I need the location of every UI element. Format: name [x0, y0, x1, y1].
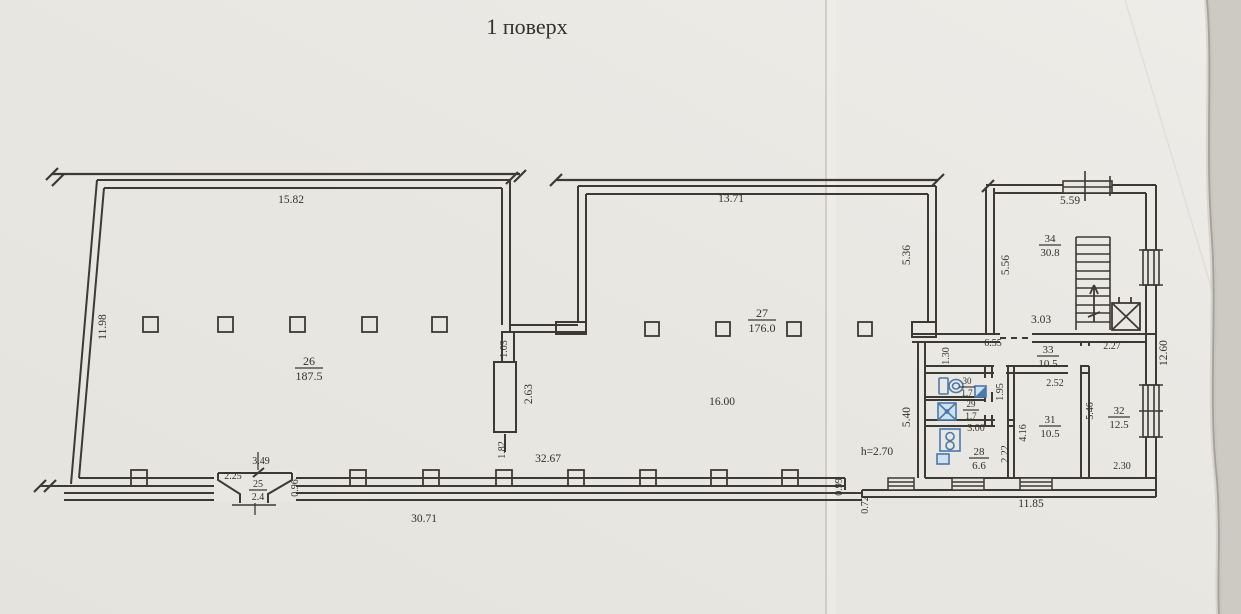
dim-label: 4.16 [1018, 424, 1029, 442]
dim-label: 0.96 [290, 479, 301, 497]
page-title: 1 поверх [486, 14, 567, 39]
floor-plan-svg: 1 поверх 15.8211.9813.711.032.631.8232.6… [0, 0, 1241, 614]
room-number: 34 [1045, 233, 1057, 245]
dim-label: 30.71 [411, 513, 437, 525]
room-number: 33 [1043, 344, 1055, 356]
dim-label: 16.00 [709, 396, 735, 408]
sink-icon [937, 454, 949, 464]
dim-label: 13.71 [718, 193, 744, 205]
dim-label: 32.67 [535, 453, 561, 465]
dim-label: 11.85 [1018, 498, 1044, 510]
room-area: 12.5 [1109, 419, 1129, 431]
room-area: 187.5 [296, 369, 323, 383]
room-number: 28 [974, 446, 986, 458]
room-area: 10.5 [1038, 358, 1058, 370]
room-area: 6.6 [972, 460, 986, 472]
room-number: 25 [253, 479, 263, 490]
dim-label: 5.40 [901, 407, 913, 427]
dim-label: 1.30 [941, 347, 952, 365]
dim-label: 2.25 [224, 471, 242, 482]
room-number: 29 [967, 399, 977, 409]
room-area: 176.0 [749, 321, 776, 335]
paper-crease-vertical [826, 0, 836, 614]
dim-label: 0.99 [834, 478, 845, 496]
room-number: 26 [303, 354, 315, 368]
dim-label: 1.95 [995, 383, 1006, 401]
dim-label: 2.52 [1046, 378, 1064, 389]
room-number: 32 [1114, 405, 1125, 417]
dim-label: 5.46 [1085, 402, 1096, 420]
shower-icon [938, 403, 956, 420]
scanned-floor-plan-page: 1 поверх 15.8211.9813.711.032.631.8232.6… [0, 0, 1241, 614]
bottom-windows [888, 478, 1052, 490]
dim-label: h=2.70 [861, 446, 894, 458]
dim-label: 12.60 [1158, 340, 1170, 366]
dim-label: 11.98 [97, 314, 109, 340]
dim-label: 6.55 [984, 338, 1002, 349]
dim-label: 1.03 [499, 340, 510, 358]
dim-label: 2.27 [1103, 341, 1121, 352]
dim-label: 1.82 [497, 441, 508, 459]
room-area: 10.5 [1040, 428, 1060, 440]
room-area: 1.7 [965, 411, 977, 421]
dim-label: 3.00 [967, 423, 985, 434]
paper-sheet [0, 0, 1222, 614]
dim-label: 0.72 [860, 496, 871, 514]
room-area: 1.7 [961, 388, 973, 398]
room-number: 31 [1045, 414, 1056, 426]
room-area: 2.4 [252, 492, 265, 503]
corner-sink-icon [975, 386, 986, 397]
dim-label: 3.03 [1031, 314, 1051, 326]
room-number: 27 [756, 306, 768, 320]
dim-label: 2.63 [523, 384, 535, 404]
dim-label: 2.22 [1000, 445, 1011, 463]
dim-label: 5.36 [901, 245, 913, 265]
dim-label: 2.30 [1113, 461, 1131, 472]
room-area: 30.8 [1040, 247, 1060, 259]
dim-label: 3.49 [252, 456, 270, 467]
dim-label: 5.59 [1060, 195, 1080, 207]
dim-label: 5.56 [1000, 255, 1012, 275]
room-number: 30 [963, 376, 973, 386]
dim-label: 15.82 [278, 194, 304, 206]
